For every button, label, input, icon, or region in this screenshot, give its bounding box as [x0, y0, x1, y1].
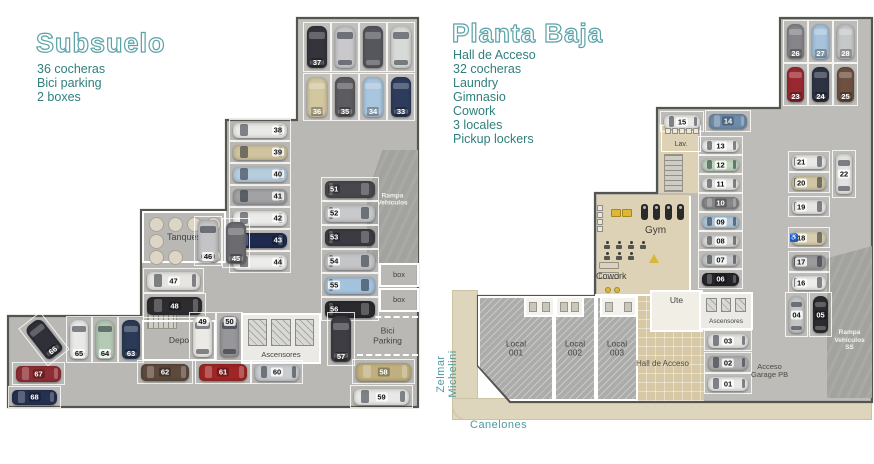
windshield: [817, 256, 822, 267]
rear-window: [733, 217, 736, 225]
parking-stall: 17: [788, 251, 830, 272]
spot-number: 16: [795, 278, 807, 287]
spot-number: 25: [839, 92, 851, 101]
fig-head: [618, 252, 621, 255]
equipment-icon: [622, 209, 632, 217]
locker-icon: [693, 128, 699, 134]
parking-stall: 24: [808, 63, 833, 106]
windshield: [789, 72, 802, 78]
car: 27: [812, 24, 829, 59]
car: 24: [812, 67, 829, 102]
car: 19: [792, 200, 826, 214]
spot-number: 10: [714, 198, 726, 207]
fig-head: [630, 241, 633, 244]
windshield: [838, 160, 850, 166]
windshield: [707, 236, 713, 245]
car: 23: [787, 67, 804, 102]
parking-stall: 19: [788, 196, 830, 217]
spot-number: 19: [795, 202, 807, 211]
fig-body: [604, 245, 610, 249]
rear-window: [742, 358, 746, 368]
spot-number: 09: [714, 217, 726, 226]
windshield: [707, 255, 713, 264]
car: 13: [702, 140, 739, 152]
parking-stall: 21: [788, 151, 830, 172]
spot-number: 21: [795, 157, 807, 166]
room: Ute: [650, 290, 703, 332]
treadmill-head: [643, 206, 646, 209]
fig-head: [606, 252, 609, 255]
parking-stall: 25: [833, 63, 858, 106]
windshield: [707, 217, 713, 226]
parking-stall: 02: [704, 352, 752, 373]
gym-machine-icon: [615, 252, 623, 261]
spot-number: 13: [714, 141, 726, 150]
spot-number: 28: [839, 49, 851, 58]
windshield: [707, 198, 713, 207]
car: 18♿: [792, 231, 826, 245]
parking-stall: 23: [783, 63, 808, 106]
parking-stall: 16: [788, 272, 830, 293]
gym-machine-icon: [603, 241, 611, 250]
rear-window: [742, 336, 746, 346]
rear-window: [742, 379, 746, 389]
parking-stall: 08: [698, 231, 743, 250]
windshield: [817, 177, 822, 188]
treadmill-icon: [677, 204, 684, 220]
parking-stall: 04: [785, 292, 808, 337]
spot-number: 24: [814, 92, 826, 101]
fig-head: [630, 252, 633, 255]
vehicle-ramp: Rampa Vehículos SS: [827, 246, 872, 398]
windshield: [669, 116, 674, 127]
fixture-icon: [560, 302, 568, 312]
rear-window: [741, 116, 744, 126]
spot-number: 04: [790, 310, 802, 319]
spot-number: 17: [795, 257, 807, 266]
windshield: [817, 277, 822, 288]
gym-machine-icon: [615, 241, 623, 250]
car: 16: [792, 276, 826, 290]
plan-text-label: Cowork: [596, 271, 627, 281]
plan-text-label: Acceso Garage PB: [751, 363, 788, 380]
rear-window: [733, 160, 736, 168]
fig-body: [628, 256, 634, 260]
car: 11: [702, 178, 739, 190]
windshield: [707, 274, 713, 284]
parking-stall: 05: [809, 292, 832, 337]
room-label: Ascensores: [701, 318, 751, 325]
parking-stall: 14: [705, 110, 751, 132]
rear-window: [694, 117, 697, 127]
locker-icon: [686, 128, 692, 134]
windshield: [707, 179, 713, 188]
rear-window: [733, 179, 736, 187]
parking-stall: 12: [698, 155, 743, 174]
parking-stall: 03: [704, 330, 752, 351]
locker-icon: [597, 219, 603, 225]
caution-cone-icon: [649, 254, 659, 263]
car: 12: [702, 159, 739, 171]
room-label: Local 002: [556, 339, 594, 358]
street-label-vertical: Zelmar Michelini: [435, 331, 447, 417]
stairs: [664, 154, 683, 192]
parking-stall: 27: [808, 20, 833, 63]
treadmill-head: [655, 206, 658, 209]
gym-machine-icon: [627, 241, 635, 250]
windshield: [815, 302, 826, 308]
spot-number: 26: [789, 49, 801, 58]
parking-stall: 09: [698, 212, 743, 231]
spot-number: 06: [714, 275, 726, 284]
car: 17: [792, 255, 826, 269]
car: 08: [702, 235, 739, 247]
car: 05: [813, 296, 828, 333]
treadmill-icon: [653, 204, 660, 220]
rear-window: [791, 326, 802, 330]
fig-head: [606, 241, 609, 244]
room-label: Lav.: [662, 141, 700, 149]
locker-icon: [597, 212, 603, 218]
windshield: [713, 357, 719, 368]
windshield: [789, 29, 802, 35]
rear-window: [733, 236, 736, 244]
locker-icon: [672, 128, 678, 134]
chair-icon: [605, 287, 611, 293]
parking-stall: 13: [698, 136, 743, 155]
windshield: [839, 72, 852, 78]
sidewalk: [452, 398, 872, 420]
windshield: [817, 201, 822, 212]
spot-number: 07: [714, 255, 726, 264]
windshield: [707, 141, 713, 150]
car: 25: [837, 67, 854, 102]
car: 06: [702, 273, 739, 286]
restroom: [524, 296, 555, 317]
windshield: [814, 29, 827, 35]
car: 01: [708, 377, 748, 391]
spot-number: 14: [722, 117, 734, 126]
ramp-label: Rampa Vehículos SS: [827, 329, 872, 351]
parking-stall: 01: [704, 373, 752, 394]
treadmill-head: [667, 206, 670, 209]
parking-stall: 26: [783, 20, 808, 63]
gym-machine-icon: [639, 241, 647, 250]
windshield: [791, 302, 802, 308]
fixture-icon: [605, 302, 613, 312]
car: 09: [702, 216, 739, 228]
fig-body: [604, 256, 610, 260]
parking-stall: 10: [698, 193, 743, 212]
restroom: [600, 296, 637, 317]
car: 26: [787, 24, 804, 59]
spot-number: 03: [722, 336, 734, 345]
fig-head: [618, 241, 621, 244]
car: 02: [708, 356, 748, 370]
street-label-horizontal: Canelones: [470, 419, 527, 431]
fig-body: [628, 245, 634, 249]
restroom: [555, 296, 584, 317]
chair-icon: [614, 287, 620, 293]
treadmill-icon: [665, 204, 672, 220]
parking-stall: 18♿: [788, 227, 830, 248]
plan-text-label: Hall de Acceso: [636, 360, 689, 369]
gym-machine-icon: [603, 252, 611, 261]
rear-window: [733, 198, 736, 206]
spot-number: 05: [814, 310, 826, 319]
fixture-icon: [571, 302, 579, 312]
parking-stall: 28: [833, 20, 858, 63]
fig-body: [616, 256, 622, 260]
car: 03: [708, 334, 748, 348]
parking-stall: 11: [698, 174, 743, 193]
spot-number: 12: [714, 160, 726, 169]
fixture-icon: [529, 302, 537, 312]
car: 28: [837, 24, 854, 59]
windshield: [707, 160, 713, 169]
car: 22: [836, 154, 852, 194]
windshield: [713, 335, 719, 346]
car: 04: [789, 296, 804, 333]
spot-number: 11: [715, 179, 727, 188]
car: 07: [702, 254, 739, 266]
rear-window: [838, 186, 849, 190]
plan-text-label: Gym: [645, 225, 666, 236]
accessible-icon: ♿: [790, 234, 798, 242]
spot-number: 20: [795, 178, 807, 187]
room-label: Local 001: [480, 339, 552, 358]
rear-window: [733, 141, 736, 149]
windshield: [713, 378, 719, 389]
fig-body: [616, 245, 622, 249]
spot-number: 15: [676, 117, 688, 126]
car: 10: [702, 197, 739, 209]
windshield: [814, 72, 827, 78]
rear-window: [733, 275, 736, 284]
windshield: [817, 232, 822, 243]
equipment-icon: [611, 209, 621, 217]
spot-number: 27: [814, 49, 826, 58]
fixture-icon: [542, 302, 550, 312]
parking-stall: 20: [788, 172, 830, 193]
spot-number: 02: [722, 358, 734, 367]
car: 21: [792, 155, 826, 169]
elevator-shaft: [735, 298, 746, 312]
treadmill-icon: [641, 204, 648, 220]
windshield: [839, 29, 852, 35]
windshield: [817, 156, 822, 167]
parking-stall: 07: [698, 250, 743, 269]
elevator-shaft: [721, 298, 732, 312]
rear-window: [815, 326, 826, 330]
equipment-icon: [599, 262, 619, 269]
locker-icon: [597, 205, 603, 211]
car: 14: [709, 114, 747, 129]
spot-number: 23: [789, 92, 801, 101]
windshield: [714, 115, 720, 126]
elevators-room: Ascensores: [699, 292, 753, 330]
gym-machine-icon: [627, 252, 635, 261]
spot-number: 08: [714, 236, 726, 245]
locker-icon: [679, 128, 685, 134]
room-label: Ute: [652, 296, 701, 306]
car: 15: [664, 115, 700, 129]
floorplan-brochure: Subsuelo 36 cocherasBici parking2 boxes …: [0, 0, 874, 464]
locker-icon: [665, 128, 671, 134]
locker-icon: [597, 226, 603, 232]
rear-window: [733, 255, 736, 263]
elevator-shaft: [706, 298, 717, 312]
parking-stall: 22: [832, 150, 856, 198]
wall: [689, 196, 691, 295]
fixture-icon: [624, 302, 632, 312]
room-label: Local 003: [598, 339, 636, 358]
fig-body: [640, 245, 646, 249]
spot-number: 01: [722, 379, 734, 388]
treadmill-head: [679, 206, 682, 209]
car: 20: [792, 176, 826, 190]
fig-head: [642, 241, 645, 244]
spot-number: 22: [838, 170, 850, 179]
parking-stall: 06: [698, 269, 743, 289]
